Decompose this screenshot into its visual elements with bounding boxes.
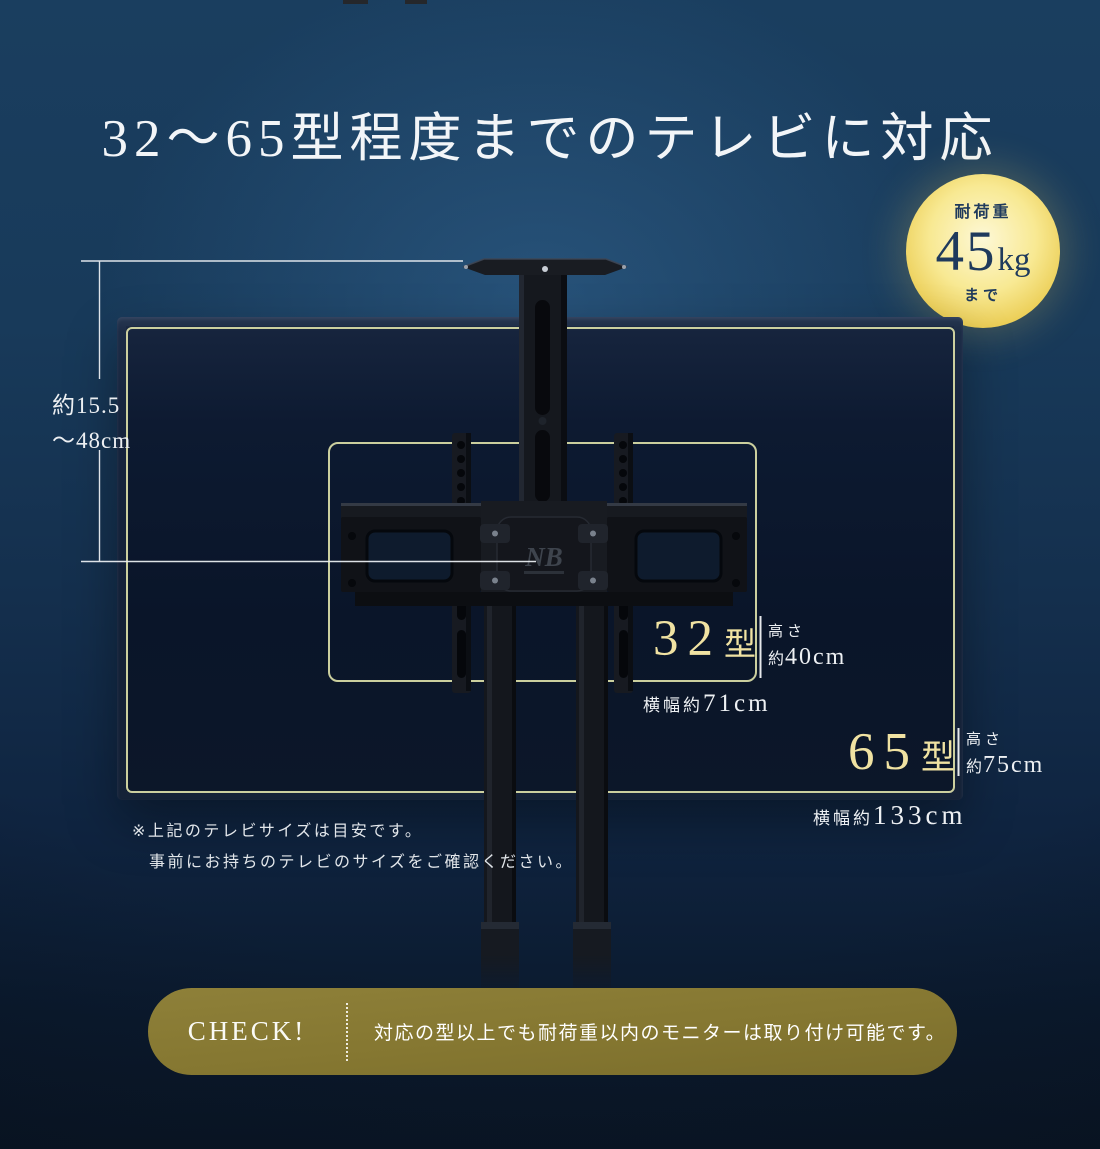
badge-weight-value: 45: [936, 223, 997, 280]
height-65-prefix: 約: [966, 759, 983, 776]
size-65-number: 65: [848, 726, 919, 779]
width-32-caption: 横幅約: [643, 696, 703, 715]
width-label-32: 横幅約71cm: [643, 690, 771, 718]
promo-section: 32〜65型程度までのテレビに対応 耐荷重 45 kg まで: [0, 0, 1100, 1149]
load-capacity-badge: 耐荷重 45 kg まで: [906, 174, 1060, 328]
check-callout-bar: CHECK! 対応の型以上でも耐荷重以内のモニターは取り付け可能です。: [148, 988, 957, 1075]
check-divider: [346, 1003, 348, 1061]
disclaimer-line1: ※上記のテレビサイズは目安です。: [132, 816, 574, 847]
size-32-number: 32: [653, 614, 722, 665]
top-crop-stub-right: [405, 0, 427, 4]
height-32-prefix: 約: [768, 651, 785, 668]
disclaimer-note: ※上記のテレビサイズは目安です。 事前にお持ちのテレビのサイズをご確認ください。: [132, 816, 574, 878]
size-32-suffix: 型: [724, 628, 756, 660]
badge-value-row: 45 kg: [936, 223, 1031, 280]
width-65-value: 133cm: [873, 800, 967, 830]
page-title: 32〜65型程度までのテレビに対応: [0, 96, 1100, 172]
height-32-value: 40cm: [785, 644, 846, 670]
height-label-32: 高さ 約40cm: [768, 620, 846, 671]
badge-weight-unit: kg: [998, 244, 1031, 277]
top-crop-stub-left: [343, 0, 368, 4]
height-65-caption: 高さ: [966, 728, 1044, 749]
size-label-32: 32 型: [653, 614, 756, 665]
height-32-caption: 高さ: [768, 620, 846, 641]
width-32-value: 71cm: [703, 690, 771, 717]
disclaimer-line2: 事前にお持ちのテレビのサイズをご確認ください。: [132, 847, 574, 878]
height-label-65: 高さ 約75cm: [966, 728, 1044, 779]
check-text: 対応の型以上でも耐荷重以内のモニターは取り付け可能です。: [374, 1018, 946, 1045]
height-65-value: 75cm: [983, 752, 1044, 778]
size-65-suffix: 型: [921, 742, 955, 776]
check-label: CHECK!: [148, 1016, 346, 1047]
arm-range-line2: 〜48cm: [52, 423, 131, 458]
badge-caption-bottom: まで: [964, 284, 1002, 305]
arm-range-label: 約15.5 〜48cm: [52, 388, 131, 458]
width-65-caption: 横幅約: [813, 809, 873, 828]
mount-top-plate: [463, 259, 627, 275]
size-label-65: 65 型: [848, 726, 955, 779]
arm-range-line1: 約15.5: [52, 388, 131, 423]
badge-caption-top: 耐荷重: [954, 198, 1011, 222]
width-label-65: 横幅約133cm: [813, 800, 967, 831]
